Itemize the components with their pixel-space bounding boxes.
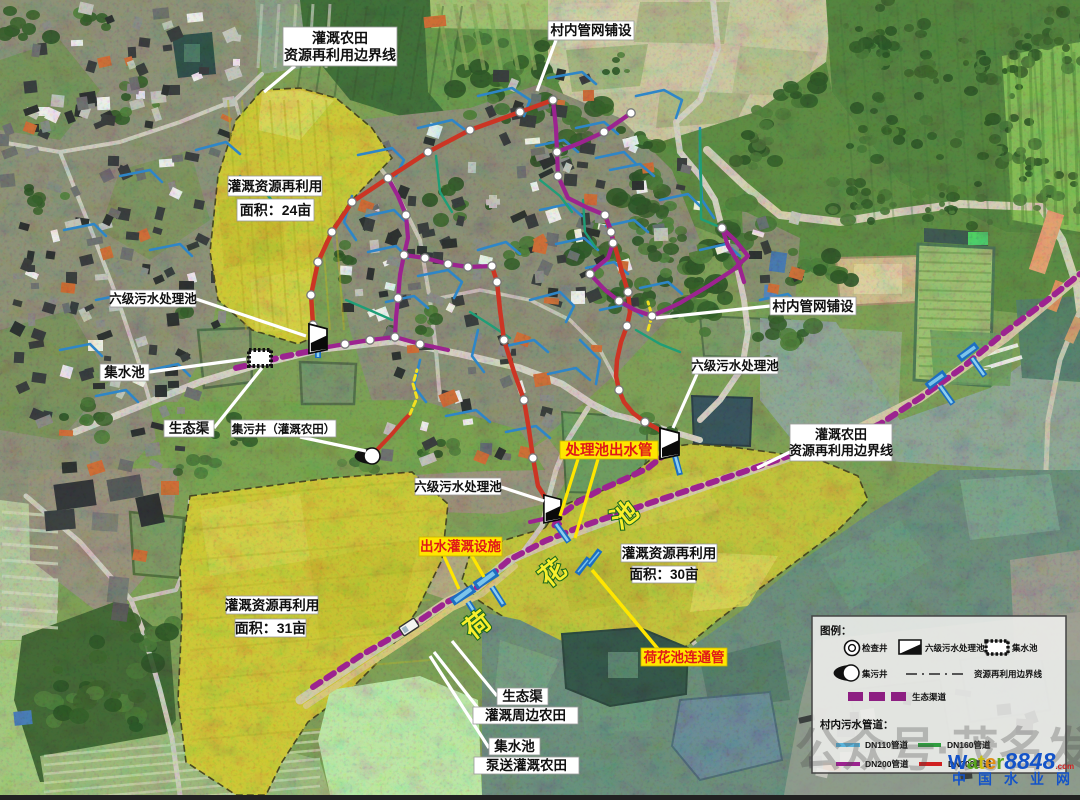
svg-text:集水池: 集水池 [103,364,145,380]
svg-text:资源再利用边界线: 资源再利用边界线 [789,443,893,458]
svg-text:灌溉资源再利用: 灌溉资源再利用 [225,597,320,613]
svg-text:荷花池连通管: 荷花池连通管 [643,649,725,665]
svg-text:生态渠道: 生态渠道 [912,692,947,702]
svg-text:生态渠: 生态渠 [502,688,543,704]
svg-text:六级污水处理池: 六级污水处理池 [925,643,985,653]
svg-text:中国水业网: 中国水业网 [952,771,1080,787]
svg-text:资源再利用边界线: 资源再利用边界线 [284,47,396,63]
svg-text:集水池: 集水池 [1011,643,1038,653]
svg-text:六级污水处理池: 六级污水处理池 [414,479,502,494]
svg-text:集水池: 集水池 [493,738,535,754]
svg-text:面积：31亩: 面积：31亩 [235,620,307,636]
svg-text:村内管网铺设: 村内管网铺设 [551,22,632,38]
svg-text:检查井: 检查井 [862,643,888,653]
svg-text:六级污水处理池: 六级污水处理池 [691,358,779,373]
svg-text:泵送灌溉农田: 泵送灌溉农田 [486,757,567,773]
svg-text:六级污水处理池: 六级污水处理池 [109,291,197,306]
svg-text:图例：: 图例： [820,624,852,637]
svg-text:灌溉农田: 灌溉农田 [312,30,368,46]
svg-text:集污井（灌溉农田）: 集污井（灌溉农田） [231,422,336,436]
svg-text:资源再利用边界线: 资源再利用边界线 [974,669,1043,679]
svg-text:村内管网铺设: 村内管网铺设 [773,298,854,314]
svg-text:灌溉资源再利用: 灌溉资源再利用 [622,545,717,561]
svg-text:面积：30亩: 面积：30亩 [629,566,698,582]
svg-text:面积：24亩: 面积：24亩 [240,202,312,218]
svg-text:灌溉资源再利用: 灌溉资源再利用 [228,178,323,194]
svg-text:集污井: 集污井 [861,669,888,679]
svg-text:生态渠: 生态渠 [169,420,210,436]
svg-text:灌溉农田: 灌溉农田 [815,427,867,442]
svg-text:灌溉周边农田: 灌溉周边农田 [485,707,566,723]
svg-text:出水灌溉设施: 出水灌溉设施 [420,538,501,554]
svg-text:处理池出水管: 处理池出水管 [565,441,653,459]
